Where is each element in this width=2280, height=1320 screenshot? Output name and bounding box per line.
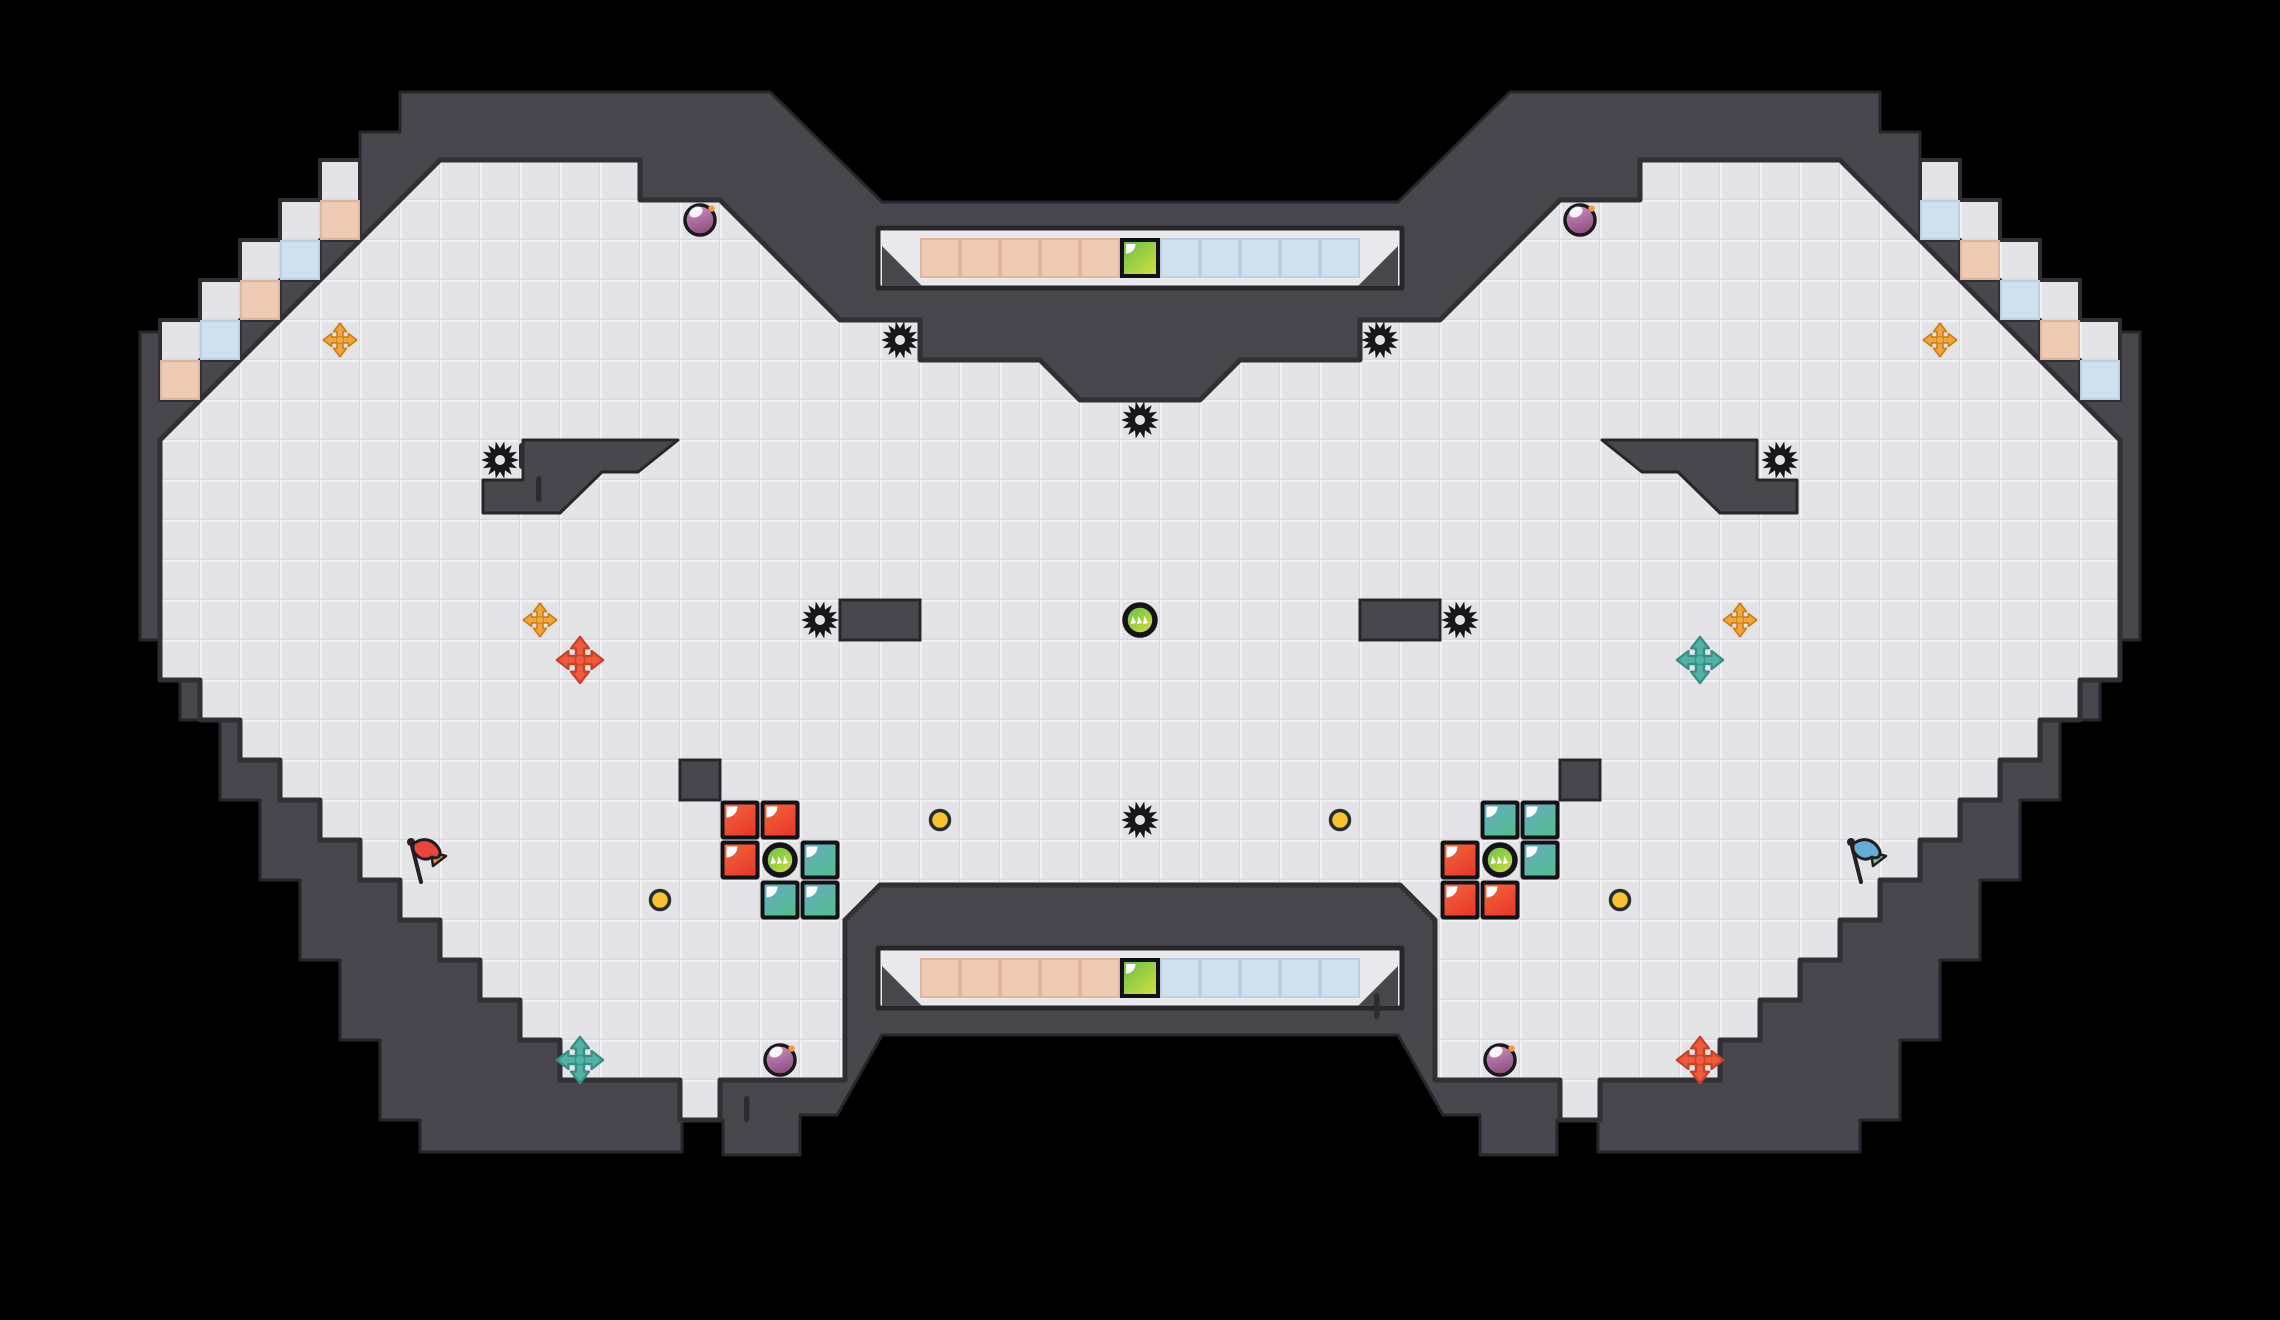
checker-tile-peach	[1961, 241, 1999, 279]
row-tile-blue	[1161, 959, 1199, 997]
row-tile-peach	[1001, 239, 1039, 277]
wall-platform-right	[1360, 600, 1440, 640]
row-tile-blue	[1321, 959, 1359, 997]
row-tile-blue	[1161, 239, 1199, 277]
door-tick	[536, 476, 542, 502]
door-tick	[1374, 993, 1380, 1019]
bomb-icon	[1485, 1044, 1515, 1075]
checker-tile-peach	[2041, 321, 2079, 359]
gold-coin	[651, 891, 670, 910]
checker-tile-blue	[201, 321, 239, 359]
row-tile-blue	[1241, 959, 1279, 997]
row-tile-peach	[1001, 959, 1039, 997]
checker-tile-blue	[281, 241, 319, 279]
gold-coin	[1611, 891, 1630, 910]
wall-platform-left	[840, 600, 920, 640]
checker-tile-blue	[2001, 281, 2039, 319]
row-tile-peach	[1041, 239, 1079, 277]
gold-coin	[931, 811, 950, 830]
bomb-icon	[1565, 204, 1595, 235]
bomb-icon	[765, 1044, 795, 1075]
row-tile-blue	[1281, 239, 1319, 277]
row-tile-blue	[1241, 239, 1279, 277]
row-tile-blue	[1321, 239, 1359, 277]
door-tick	[519, 443, 525, 469]
row-tile-blue	[1201, 959, 1239, 997]
row-tile-peach	[961, 239, 999, 277]
drone-icon	[765, 845, 795, 875]
door-tick	[744, 1096, 750, 1122]
checker-tile-blue	[1921, 201, 1959, 239]
checker-tile-peach	[321, 201, 359, 239]
level-map	[0, 0, 2280, 1320]
row-tile-peach	[961, 959, 999, 997]
checker-tile-peach	[241, 281, 279, 319]
row-tile-blue	[1201, 239, 1239, 277]
gold-coin	[1331, 811, 1350, 830]
wall-pillar-right	[1560, 760, 1600, 800]
wall-pillar-left	[680, 760, 720, 800]
bomb-icon	[685, 204, 715, 235]
drone-icon	[1125, 605, 1155, 635]
row-tile-peach	[1041, 959, 1079, 997]
game-viewport[interactable]	[0, 0, 2280, 1320]
row-tile-peach	[921, 239, 959, 277]
row-tile-peach	[921, 959, 959, 997]
row-tile-blue	[1281, 959, 1319, 997]
row-tile-peach	[1081, 959, 1119, 997]
drone-icon	[1485, 845, 1515, 875]
row-tile-peach	[1081, 239, 1119, 277]
checker-tile-blue	[2081, 361, 2119, 399]
checker-tile-peach	[161, 361, 199, 399]
